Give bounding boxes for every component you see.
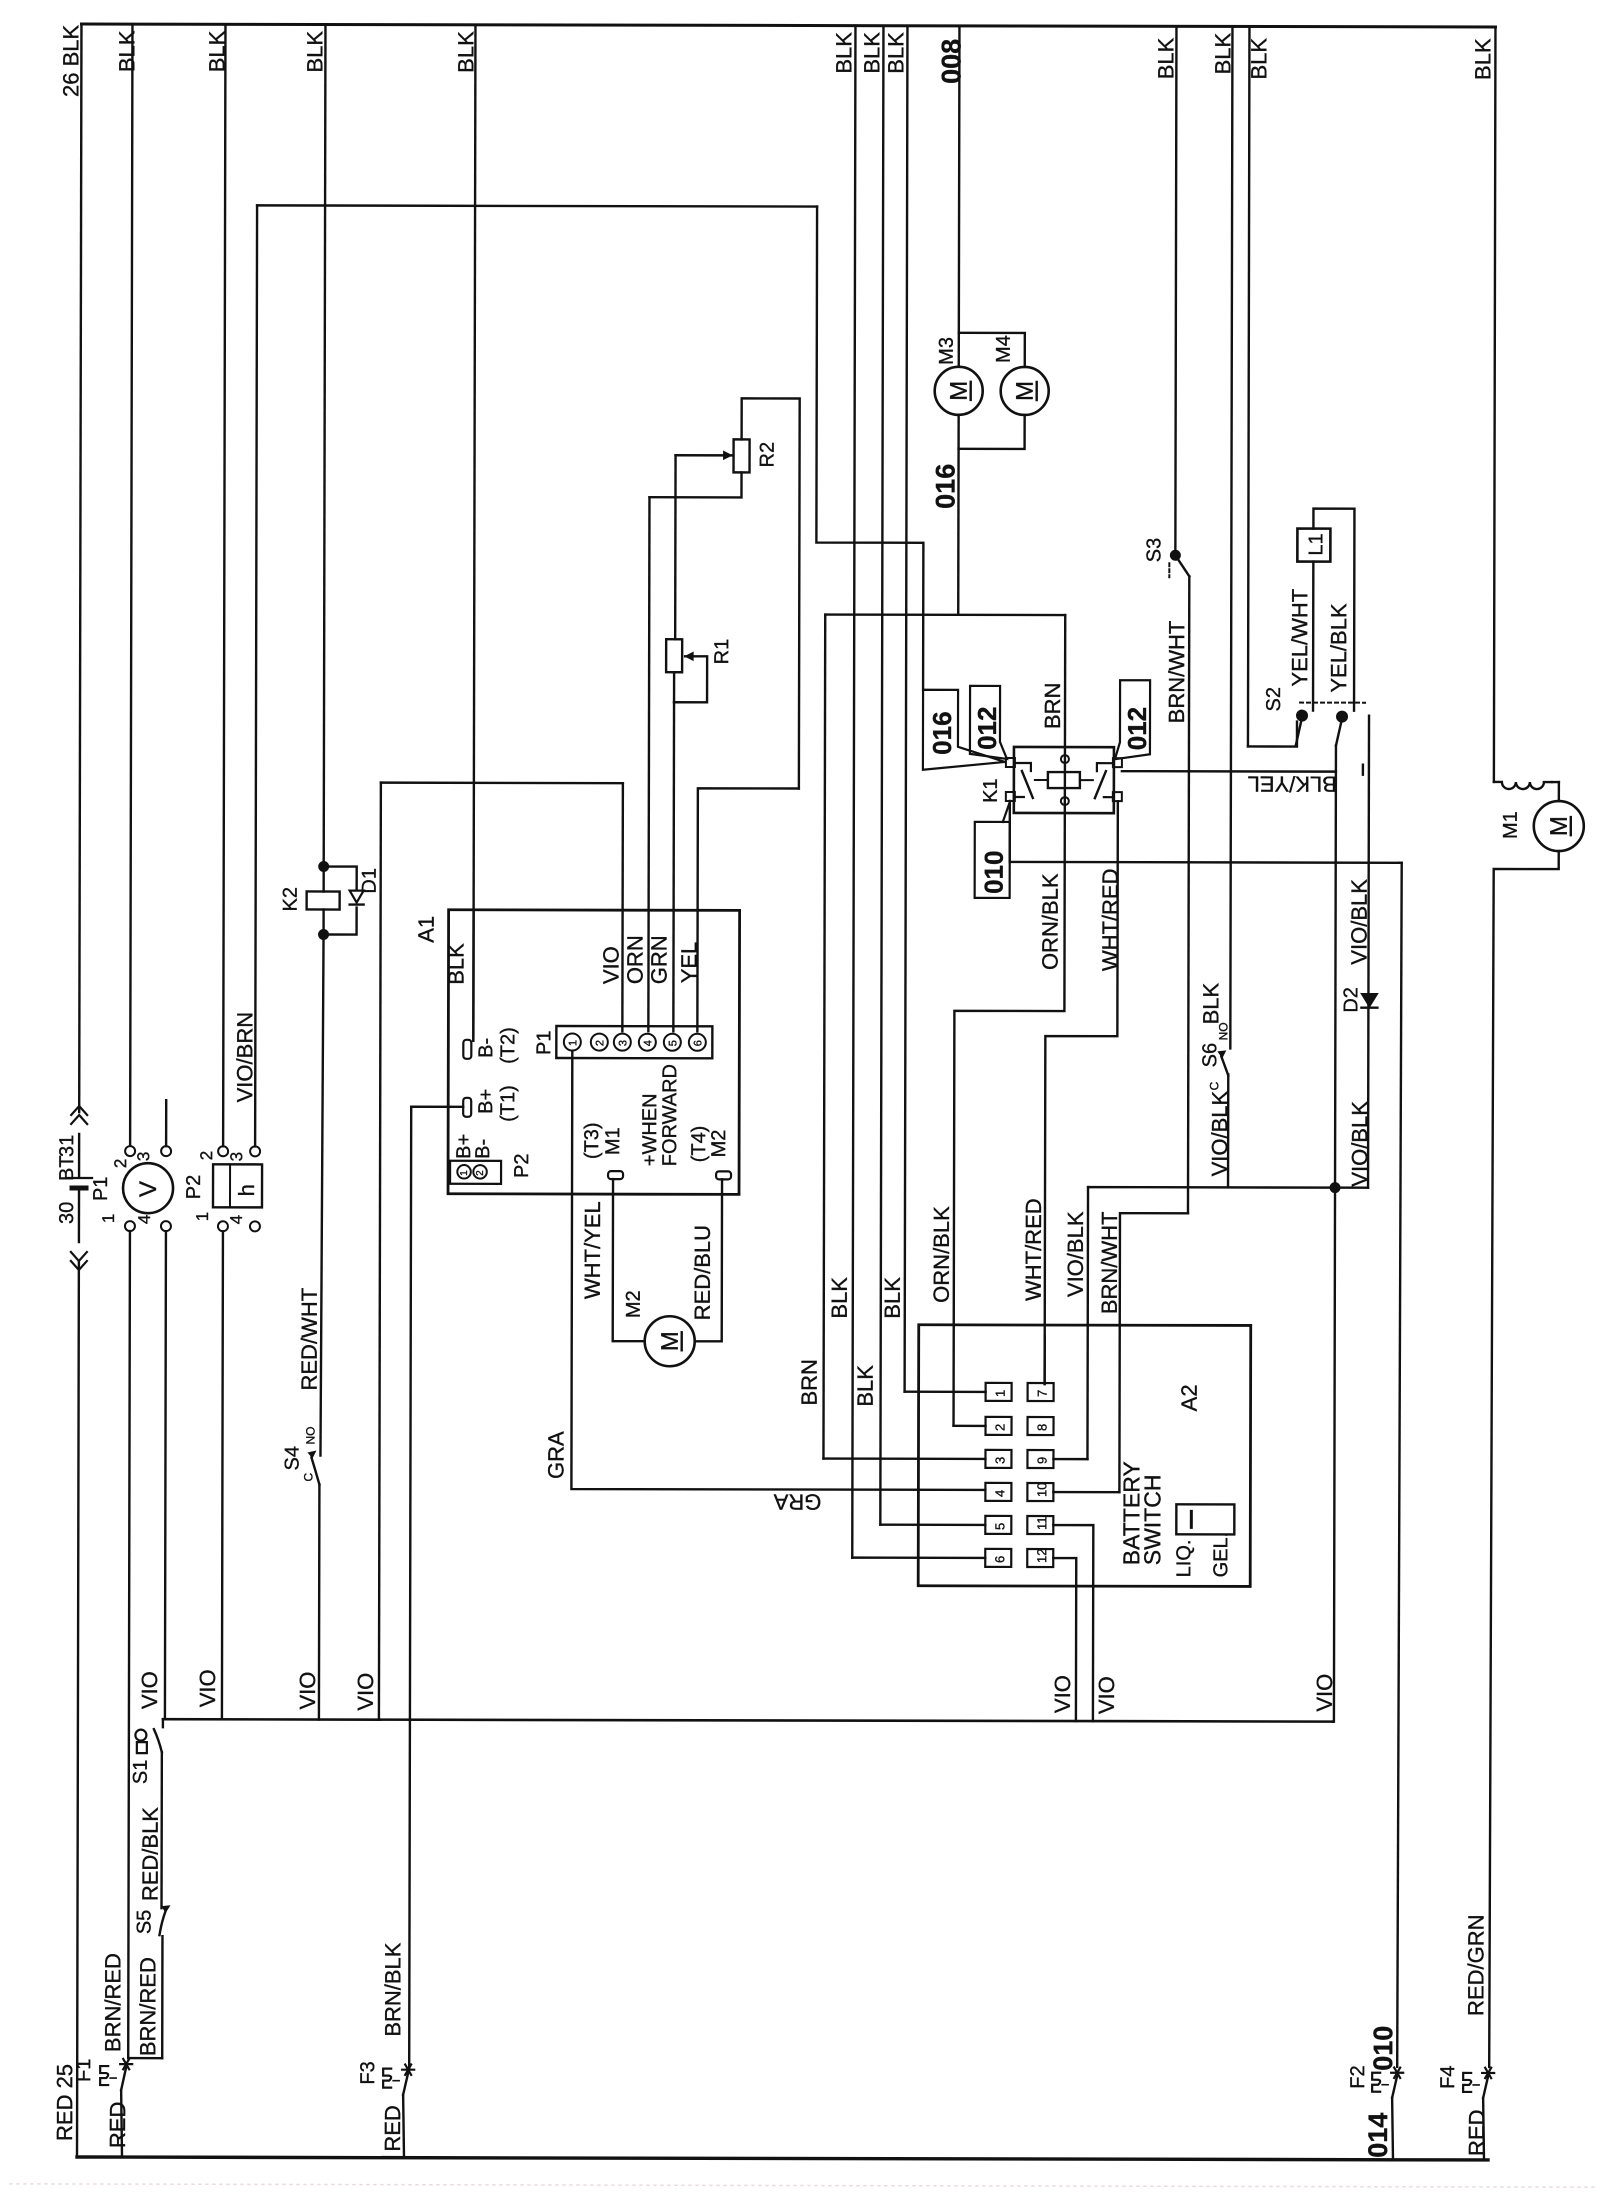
svg-text:RED: RED	[1464, 2109, 1489, 2156]
svg-text:B-: B-	[472, 1139, 494, 1159]
svg-text:(T2): (T2)	[497, 1027, 519, 1064]
svg-text:M4: M4	[993, 335, 1015, 363]
svg-text:BLK: BLK	[114, 30, 139, 72]
svg-text:M3: M3	[936, 337, 958, 365]
svg-text:VIO: VIO	[137, 1671, 162, 1709]
svg-text:VIO: VIO	[295, 1672, 320, 1710]
svg-text:VIO: VIO	[598, 946, 623, 984]
svg-text:S3: S3	[1143, 538, 1165, 563]
svg-text:BLK: BLK	[453, 31, 478, 73]
svg-text:BLK: BLK	[1153, 37, 1178, 79]
svg-text:1: 1	[99, 1214, 118, 1224]
svg-text:RED/WHT: RED/WHT	[297, 1288, 322, 1391]
svg-text:BLK: BLK	[204, 30, 229, 72]
svg-text:30: 30	[56, 1202, 78, 1224]
svg-text:VIO/BLK: VIO/BLK	[1063, 1211, 1088, 1297]
svg-text:1: 1	[993, 1390, 1008, 1397]
svg-text:4: 4	[992, 1490, 1007, 1497]
svg-text:BLK: BLK	[827, 1277, 852, 1319]
svg-text:C: C	[1207, 1081, 1221, 1090]
svg-text:BLK: BLK	[1210, 32, 1235, 74]
svg-text:LIQ.: LIQ.	[1173, 1539, 1195, 1577]
svg-text:A2: A2	[1177, 1384, 1202, 1411]
svg-text:6: 6	[692, 1040, 704, 1046]
svg-text:6: 6	[992, 1556, 1007, 1563]
svg-text:3: 3	[134, 1152, 153, 1162]
svg-text:BRN: BRN	[1040, 683, 1065, 730]
svg-text:8: 8	[1035, 1424, 1050, 1431]
svg-text:4: 4	[135, 1215, 154, 1225]
svg-text:BLK/YEL: BLK/YEL	[1248, 771, 1337, 796]
svg-text:VIO: VIO	[195, 1669, 220, 1707]
svg-text:016: 016	[930, 464, 960, 509]
svg-text:GRN: GRN	[646, 935, 671, 984]
svg-text:S4: S4	[281, 1446, 303, 1471]
svg-text:VIO: VIO	[1312, 1674, 1337, 1712]
svg-text:P1: P1	[90, 1177, 112, 1202]
svg-text:C: C	[301, 1472, 315, 1481]
svg-text:010: 010	[1368, 2026, 1398, 2071]
svg-text:2: 2	[111, 1159, 130, 1169]
svg-text:2: 2	[993, 1424, 1008, 1431]
svg-text:K2: K2	[280, 887, 302, 912]
svg-text:26 BLK: 26 BLK	[58, 24, 83, 97]
svg-text:VIO: VIO	[353, 1673, 378, 1711]
svg-text:R2: R2	[757, 442, 779, 468]
svg-text:BRN/WHT: BRN/WHT	[1164, 621, 1189, 724]
svg-text:F4: F4	[1437, 2066, 1459, 2089]
svg-text:7: 7	[1035, 1390, 1050, 1397]
svg-text:S5: S5	[133, 1910, 155, 1935]
svg-text:5: 5	[667, 1040, 679, 1046]
svg-text:RED/GRN: RED/GRN	[1463, 1914, 1488, 2016]
svg-text:FORWARD: FORWARD	[659, 1064, 681, 1166]
svg-text:D2: D2	[1340, 987, 1362, 1013]
svg-text:K1: K1	[980, 778, 1002, 803]
svg-text:M2: M2	[623, 1290, 645, 1318]
svg-text:h: h	[234, 1184, 259, 1196]
svg-text:VIO/BLK: VIO/BLK	[1347, 879, 1372, 965]
svg-text:3: 3	[227, 1152, 246, 1162]
svg-text:BLK: BLK	[883, 32, 908, 74]
svg-text:BRN/BLK: BRN/BLK	[380, 1942, 405, 2037]
svg-text:BRN/WHT: BRN/WHT	[1097, 1211, 1122, 1314]
svg-text:VIO/BLK: VIO/BLK	[1207, 1090, 1232, 1176]
svg-text:BLK: BLK	[302, 31, 327, 73]
svg-text:B-: B-	[475, 1038, 497, 1058]
svg-text:010: 010	[979, 850, 1009, 893]
svg-text:V: V	[135, 1181, 162, 1197]
svg-text:WHT/YEL: WHT/YEL	[580, 1201, 605, 1299]
svg-text:1: 1	[459, 1170, 470, 1176]
svg-text:M: M	[1546, 816, 1573, 836]
svg-text:L1: L1	[1305, 533, 1327, 555]
svg-text:F3: F3	[357, 2061, 379, 2084]
svg-text:GRA: GRA	[773, 1489, 821, 1514]
svg-text:2: 2	[475, 1170, 486, 1176]
svg-text:4: 4	[227, 1215, 246, 1225]
svg-text:BRN/RED: BRN/RED	[100, 1953, 125, 2052]
svg-text:D1: D1	[359, 868, 381, 894]
svg-text:1: 1	[193, 1212, 212, 1222]
svg-text:BLK: BLK	[880, 1277, 905, 1319]
svg-text:A1: A1	[414, 916, 439, 943]
svg-text:3: 3	[617, 1040, 629, 1046]
svg-text:BRN: BRN	[797, 1359, 822, 1406]
svg-text:4: 4	[642, 1040, 654, 1046]
svg-text:ORN/BLK: ORN/BLK	[929, 1206, 954, 1303]
svg-text:RED: RED	[380, 2105, 405, 2152]
svg-text:WHT/RED: WHT/RED	[1097, 868, 1122, 971]
svg-text:B+: B+	[475, 1089, 497, 1114]
svg-text:3: 3	[992, 1457, 1007, 1464]
svg-text:NO: NO	[303, 1426, 317, 1444]
svg-text:VIO: VIO	[1050, 1675, 1075, 1713]
svg-text:YEL/BLK: YEL/BLK	[1326, 603, 1351, 693]
svg-text:RED/BLK: RED/BLK	[138, 1807, 163, 1902]
svg-text:1: 1	[567, 1040, 579, 1046]
svg-text:VIO/BRN: VIO/BRN	[232, 1012, 257, 1103]
svg-text:F2: F2	[1347, 2065, 1369, 2088]
svg-text:014: 014	[1363, 2113, 1393, 2158]
svg-text:BRN/RED: BRN/RED	[135, 1957, 160, 2056]
svg-text:NO: NO	[1216, 1022, 1230, 1040]
svg-text:WHT/RED: WHT/RED	[1021, 1198, 1046, 1301]
svg-text:11: 11	[1034, 1517, 1049, 1531]
svg-text:P1: P1	[533, 1030, 555, 1055]
svg-text:ORN/BLK: ORN/BLK	[1037, 873, 1062, 970]
svg-text:12: 12	[1034, 1549, 1049, 1564]
svg-text:BLK: BLK	[1246, 38, 1271, 80]
svg-text:S2: S2	[1263, 687, 1285, 712]
svg-text:BLK: BLK	[853, 1365, 878, 1407]
svg-text:+WHEN: +WHEN	[639, 1093, 661, 1166]
svg-text:012: 012	[1122, 707, 1152, 750]
svg-text:BLK: BLK	[859, 32, 884, 74]
svg-text:F1: F1	[73, 2059, 95, 2082]
svg-text:M1: M1	[602, 1127, 624, 1155]
svg-text:(T4): (T4)	[688, 1126, 710, 1163]
svg-text:R1: R1	[711, 639, 733, 665]
svg-text:012: 012	[972, 706, 1002, 749]
svg-text:GEL.: GEL.	[1210, 1532, 1232, 1578]
svg-text:BLK: BLK	[1198, 982, 1223, 1024]
svg-text:VIO/BLK: VIO/BLK	[1347, 1101, 1372, 1187]
svg-text:(T1): (T1)	[497, 1085, 519, 1122]
svg-text:9: 9	[1034, 1457, 1049, 1464]
svg-text:YEL: YEL	[676, 942, 701, 984]
svg-text:P2: P2	[183, 1175, 205, 1200]
svg-text:M: M	[657, 1331, 684, 1351]
svg-text:5: 5	[992, 1523, 1007, 1530]
svg-text:BT: BT	[56, 1155, 78, 1181]
svg-text:ORN: ORN	[622, 935, 647, 984]
svg-text:10: 10	[1034, 1483, 1049, 1498]
svg-text:(T3): (T3)	[581, 1122, 603, 1159]
svg-text:VIO: VIO	[1094, 1676, 1119, 1714]
svg-text:YEL/WHT: YEL/WHT	[1287, 589, 1312, 687]
svg-text:RED/BLU: RED/BLU	[690, 1225, 715, 1320]
svg-text:P2: P2	[511, 1153, 533, 1178]
svg-text:M2: M2	[708, 1130, 730, 1158]
svg-text:BLK: BLK	[831, 32, 856, 74]
svg-text:016: 016	[927, 711, 957, 754]
svg-text:RED: RED	[105, 2102, 130, 2149]
svg-text:2: 2	[594, 1040, 606, 1046]
svg-text:BLK: BLK	[1470, 38, 1495, 80]
svg-text:M: M	[946, 381, 973, 401]
svg-text:M: M	[1012, 381, 1039, 401]
svg-text:31: 31	[56, 1135, 78, 1157]
svg-text:SWITCH: SWITCH	[1139, 1475, 1165, 1566]
svg-text:BLK: BLK	[443, 943, 468, 985]
svg-text:GRA: GRA	[543, 1431, 568, 1479]
svg-text:S1: S1	[130, 1760, 152, 1785]
svg-text:M1: M1	[1500, 811, 1522, 839]
svg-text:008: 008	[936, 39, 966, 84]
svg-text:2: 2	[197, 1151, 216, 1161]
svg-text:S6: S6	[1199, 1043, 1221, 1068]
